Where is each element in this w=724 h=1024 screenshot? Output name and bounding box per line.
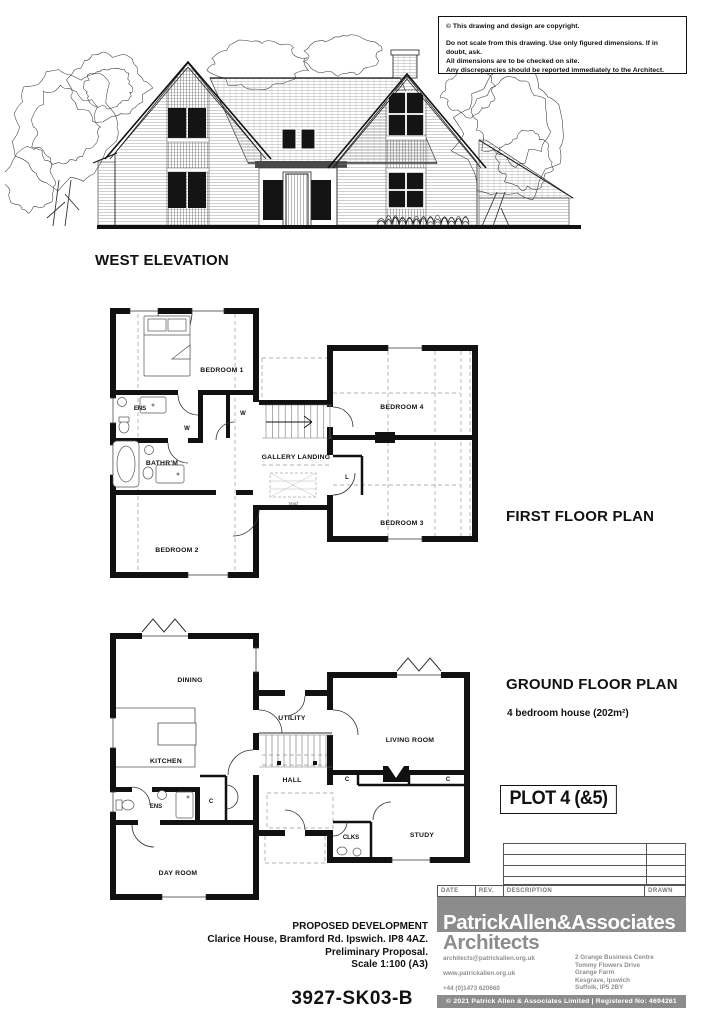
room-label-landing: GALLERY LANDING [262, 454, 331, 461]
notice-line: All dimensions are to be checked on site… [446, 57, 679, 66]
left-wing [93, 153, 117, 227]
right-wing [479, 140, 573, 227]
plot-number-badge: PLOT 4 (&5) [500, 785, 617, 814]
stairs [259, 733, 332, 767]
void-label: Void [288, 501, 298, 507]
drawing-number: 3927-SK03-B [291, 988, 413, 1010]
toilet [119, 421, 129, 433]
ground-floor-plan-drawing: DINING KITCHEN UTILITY HALL ENS DAY ROOM… [100, 615, 480, 905]
room-label-study: STUDY [410, 832, 435, 839]
firm-website: www.patrickallen.org.uk [443, 970, 535, 977]
room-label-clks: CLKS [343, 835, 359, 841]
col-date: DATE [437, 885, 476, 897]
project-scale: Scale 1:100 (A3) [207, 959, 428, 972]
notice-line: Do not scale from this drawing. Use only… [446, 39, 679, 57]
room-label-bedroom4: BEDROOM 4 [380, 404, 423, 411]
project-info: PROPOSED DEVELOPMENT Clarice House, Bram… [207, 921, 428, 972]
first-floor-title: FIRST FLOOR PLAN [506, 508, 654, 525]
firm-email: architects@patrickallen.org.uk [443, 955, 535, 962]
project-address: Clarice House, Bramford Rd. Ipswich. IP8… [207, 934, 428, 947]
col-description: DESCRIPTION [503, 885, 645, 897]
toilet [122, 800, 134, 810]
room-label-kitchen: KITCHEN [150, 758, 182, 765]
col-rev: REV. [475, 885, 504, 897]
room-label-ens: ENS [134, 406, 146, 412]
project-status: Preliminary Proposal. [207, 947, 428, 960]
front-door [286, 174, 308, 227]
firm-contact: architects@patrickallen.org.uk www.patri… [443, 955, 535, 1000]
window [388, 172, 424, 208]
firm-phone: +44 (0)1473 620660 [443, 985, 535, 992]
void-opening [270, 473, 316, 497]
window [388, 92, 424, 136]
window [188, 172, 206, 208]
house-spec: 4 bedroom house (202m²) [507, 708, 629, 719]
west-elevation-title: WEST ELEVATION [95, 252, 229, 269]
room-label-dining: DINING [177, 677, 202, 684]
room-label-utility: UTILITY [278, 715, 306, 722]
first-floor-plan-drawing: BEDROOM 1 ENS BATHR'M BEDROOM 2 GALLERY … [100, 295, 480, 585]
ground-line [97, 225, 581, 229]
room-label-bathroom: BATHR'M [146, 460, 178, 467]
room-label-bedroom2: BEDROOM 2 [155, 547, 198, 554]
dashed-guides [262, 755, 333, 863]
shower [176, 792, 193, 818]
basin [353, 848, 361, 856]
room-label-hall: HALL [282, 777, 301, 784]
entrance-porch [255, 161, 347, 227]
closet-label-w: W [184, 426, 190, 432]
shower [156, 465, 184, 483]
cupboard-label-c: C [345, 777, 350, 783]
window [311, 180, 331, 220]
drawing-sheet: © This drawing and design are copyright.… [0, 0, 724, 1024]
chimney [393, 52, 417, 78]
room-label-living: LIVING ROOM [386, 737, 435, 744]
col-drawn: DRAWN [644, 885, 686, 897]
toilet [337, 847, 347, 855]
basin [145, 446, 154, 455]
room-label-ens: ENS [150, 804, 162, 810]
break-line-zigzag [397, 658, 441, 671]
break-line-zigzag [142, 619, 186, 632]
firm-copyright-bar: © 2021 Patrick Allen & Associates Limite… [437, 995, 686, 1008]
closet-label-w: W [240, 411, 246, 417]
notice-line: © This drawing and design are copyright. [446, 22, 679, 31]
copyright-notice: © This drawing and design are copyright.… [438, 16, 687, 74]
room-label-dayroom: DAY ROOM [159, 870, 198, 877]
stairs [262, 405, 332, 438]
kitchen-island [158, 723, 196, 745]
ground-floor-title: GROUND FLOOR PLAN [506, 676, 678, 693]
firm-profession: Architects [443, 931, 539, 955]
cupboard-label-c: C [209, 799, 214, 805]
window [168, 172, 186, 208]
room-label-bedroom3: BEDROOM 3 [380, 520, 423, 527]
closet-label-l: L [345, 475, 349, 481]
project-title: PROPOSED DEVELOPMENT [207, 921, 428, 934]
basin [158, 791, 167, 800]
firm-address: 2 Grange Business Centre Tommy Flowers D… [575, 954, 654, 992]
window [188, 108, 206, 138]
room-label-bedroom1: BEDROOM 1 [200, 367, 243, 374]
window [263, 180, 283, 220]
notice-line: Any discrepancies should be reported imm… [446, 66, 679, 75]
revision-rows [503, 843, 686, 885]
basin [118, 398, 127, 407]
cupboard-label-c: C [446, 777, 451, 783]
revision-header: DATE REV. DESCRIPTION DRAWN [437, 885, 686, 897]
firm-banner: PatrickAllen&Associates [437, 897, 686, 932]
toilet [143, 467, 153, 479]
window [168, 108, 186, 138]
